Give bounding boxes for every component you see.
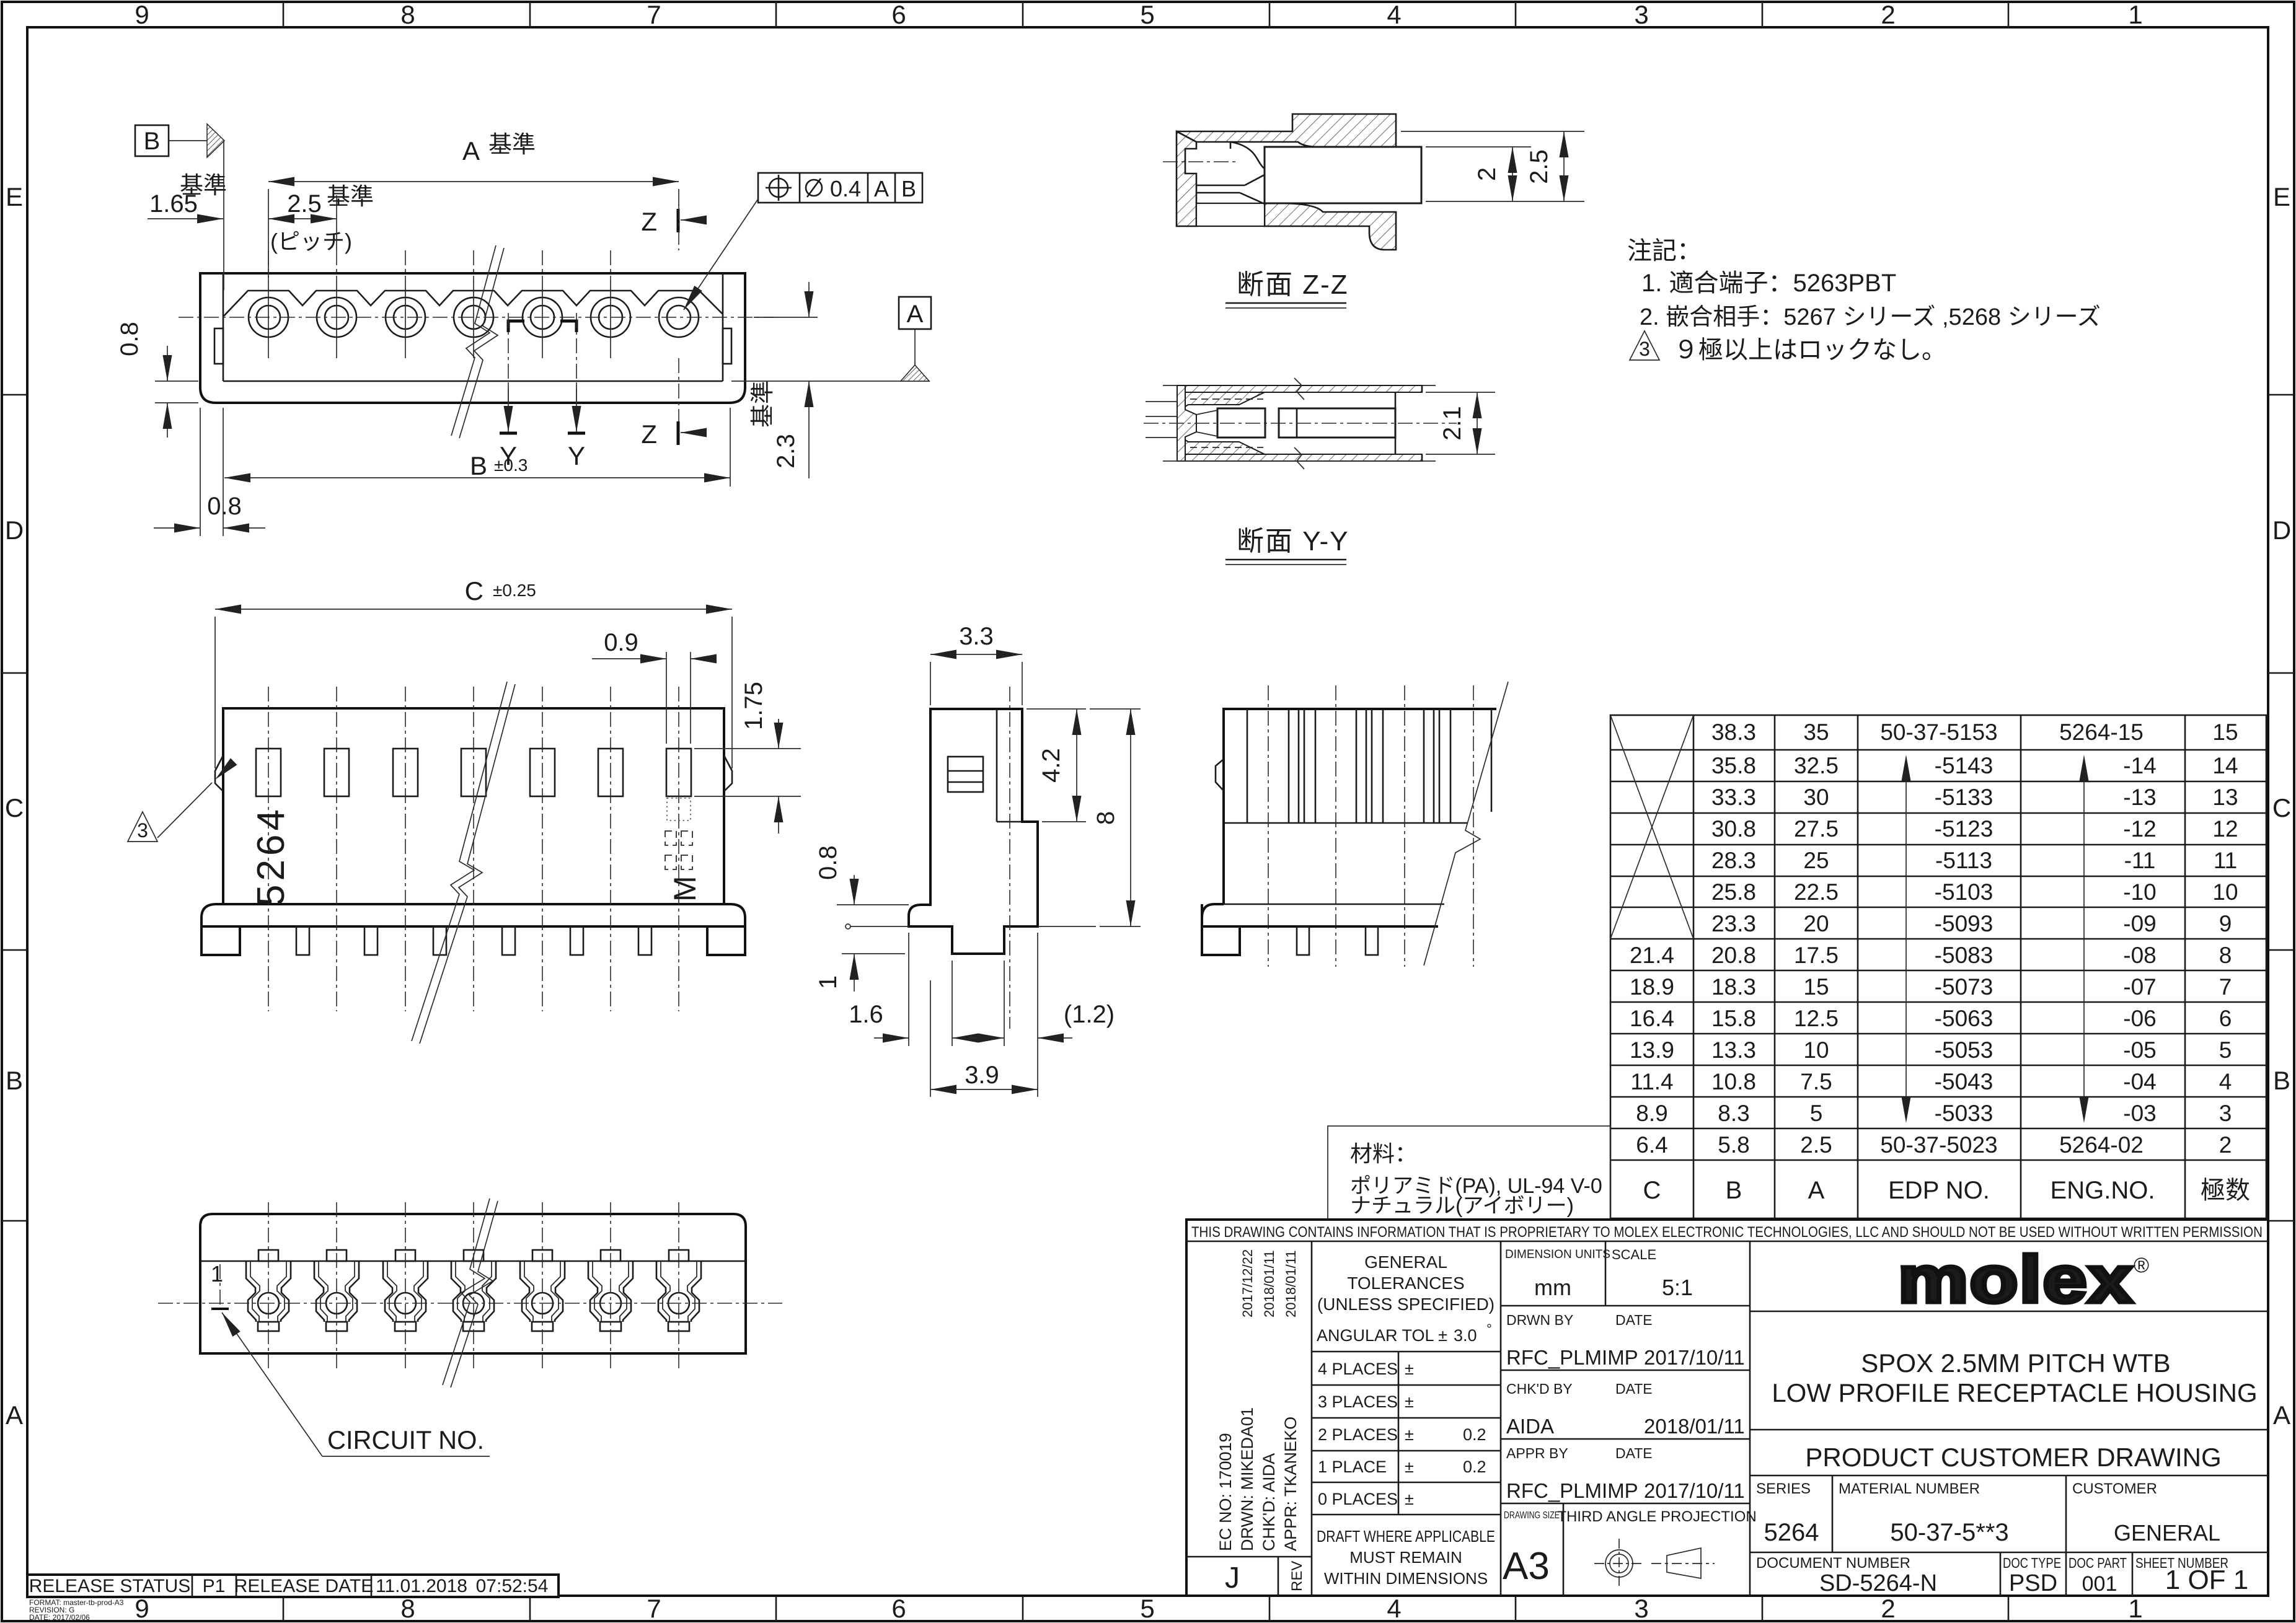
svg-text:PSD: PSD bbox=[2009, 1570, 2057, 1596]
svg-text:15: 15 bbox=[1803, 974, 1829, 1000]
svg-text:°: ° bbox=[1486, 1321, 1492, 1337]
svg-text:AIDA: AIDA bbox=[1506, 1415, 1554, 1438]
svg-text:6: 6 bbox=[891, 0, 906, 29]
svg-text:2: 2 bbox=[1473, 167, 1501, 181]
svg-text:0 PLACES: 0 PLACES bbox=[1318, 1490, 1398, 1508]
svg-text:-5123: -5123 bbox=[1935, 816, 1994, 842]
svg-text:1: 1 bbox=[211, 1261, 223, 1287]
svg-text:B: B bbox=[6, 1066, 23, 1095]
svg-text:材料：: 材料： bbox=[1350, 1141, 1417, 1166]
svg-text:2017/10/11: 2017/10/11 bbox=[1644, 1346, 1745, 1369]
svg-text:10: 10 bbox=[1803, 1037, 1829, 1063]
svg-text:5.8: 5.8 bbox=[1718, 1132, 1749, 1158]
svg-text:(UNLESS SPECIFIED): (UNLESS SPECIFIED) bbox=[1317, 1295, 1495, 1314]
svg-text:±: ± bbox=[1405, 1458, 1414, 1476]
svg-text:7: 7 bbox=[647, 0, 661, 29]
svg-text:-07: -07 bbox=[2123, 974, 2156, 1000]
svg-text:molex: molex bbox=[1898, 1243, 2134, 1316]
svg-text:20: 20 bbox=[1803, 911, 1829, 936]
svg-text:13.9: 13.9 bbox=[1630, 1037, 1674, 1063]
svg-text:3: 3 bbox=[1634, 0, 1648, 29]
svg-text:0.8: 0.8 bbox=[207, 493, 242, 520]
svg-text:0.9: 0.9 bbox=[604, 629, 638, 656]
svg-text:-5053: -5053 bbox=[1935, 1037, 1994, 1063]
svg-text:25.8: 25.8 bbox=[1711, 879, 1756, 905]
svg-text:5:1: 5:1 bbox=[1662, 1275, 1693, 1300]
svg-text:22.5: 22.5 bbox=[1794, 879, 1839, 905]
svg-text:18.9: 18.9 bbox=[1630, 974, 1674, 1000]
svg-text:SCALE: SCALE bbox=[1612, 1247, 1656, 1262]
svg-text:-5113: -5113 bbox=[1935, 848, 1992, 873]
svg-text:5264: 5264 bbox=[250, 806, 293, 906]
svg-text:WITHIN DIMENSIONS: WITHIN DIMENSIONS bbox=[1324, 1569, 1488, 1588]
svg-text:8: 8 bbox=[400, 1594, 415, 1623]
svg-text:9: 9 bbox=[135, 0, 149, 29]
svg-text:REV: REV bbox=[1289, 1561, 1305, 1591]
svg-text:RFC_PLMIMP: RFC_PLMIMP bbox=[1506, 1479, 1638, 1502]
svg-text:E: E bbox=[2273, 182, 2290, 211]
svg-text:-5063: -5063 bbox=[1935, 1006, 1994, 1031]
svg-text:7.5: 7.5 bbox=[1800, 1069, 1832, 1094]
svg-text:APPR BY: APPR BY bbox=[1506, 1445, 1568, 1461]
svg-text:3.3: 3.3 bbox=[959, 623, 994, 650]
svg-text:2018/01/11: 2018/01/11 bbox=[1261, 1251, 1277, 1317]
svg-text:2: 2 bbox=[1881, 0, 1895, 29]
svg-text:THIS DRAWING CONTAINS INFORMAT: THIS DRAWING CONTAINS INFORMATION THAT I… bbox=[1191, 1224, 2263, 1241]
svg-text:27.5: 27.5 bbox=[1794, 816, 1839, 842]
svg-text:35: 35 bbox=[1803, 719, 1829, 745]
svg-text:C: C bbox=[5, 793, 24, 822]
svg-text:2: 2 bbox=[2219, 1132, 2232, 1158]
svg-text:3: 3 bbox=[1634, 1594, 1648, 1623]
svg-text:5: 5 bbox=[2219, 1037, 2232, 1063]
svg-text:1. 適合端子：5263PBT: 1. 適合端子：5263PBT bbox=[1641, 270, 1896, 297]
svg-text:B: B bbox=[1726, 1177, 1742, 1204]
svg-text:ANGULAR TOL ±: ANGULAR TOL ± bbox=[1317, 1326, 1447, 1345]
svg-text:001: 001 bbox=[2082, 1572, 2117, 1596]
svg-text:-5093: -5093 bbox=[1935, 911, 1994, 936]
svg-text:11.01.2018: 11.01.2018 bbox=[376, 1576, 467, 1596]
svg-text:5: 5 bbox=[1810, 1101, 1823, 1126]
svg-text:D: D bbox=[2272, 516, 2291, 545]
svg-text:10: 10 bbox=[2212, 879, 2238, 905]
svg-text:M: M bbox=[668, 876, 702, 902]
svg-text:EDP NO.: EDP NO. bbox=[1888, 1177, 1990, 1204]
svg-text:±: ± bbox=[1405, 1392, 1414, 1411]
svg-text:CIRCUIT NO.: CIRCUIT NO. bbox=[327, 1425, 484, 1454]
svg-text:15: 15 bbox=[2212, 719, 2238, 745]
svg-text:B: B bbox=[2273, 1066, 2290, 1095]
svg-text:12: 12 bbox=[2212, 816, 2238, 842]
svg-text:8: 8 bbox=[400, 0, 415, 29]
svg-text:3.0: 3.0 bbox=[1454, 1326, 1477, 1345]
svg-text:CHK'D: AIDA: CHK'D: AIDA bbox=[1260, 1453, 1278, 1551]
svg-text:C: C bbox=[2272, 793, 2291, 822]
svg-text:A: A bbox=[1808, 1177, 1825, 1204]
svg-text:A: A bbox=[6, 1401, 23, 1430]
svg-text:-08: -08 bbox=[2123, 943, 2156, 968]
svg-text:0.4: 0.4 bbox=[830, 176, 861, 201]
svg-text:28.3: 28.3 bbox=[1711, 848, 1756, 873]
svg-text:THIRD ANGLE PROJECTION: THIRD ANGLE PROJECTION bbox=[1557, 1508, 1756, 1525]
svg-text:ENG.NO.: ENG.NO. bbox=[2051, 1177, 2155, 1204]
svg-text:DATE: DATE bbox=[1615, 1312, 1653, 1328]
svg-text:-10: -10 bbox=[2123, 879, 2156, 905]
svg-text:®: ® bbox=[2134, 1254, 2149, 1277]
svg-text:GENERAL: GENERAL bbox=[2114, 1520, 2220, 1546]
svg-text:基準: 基準 bbox=[327, 184, 374, 210]
svg-text:1: 1 bbox=[2128, 0, 2142, 29]
svg-text:07:52:54: 07:52:54 bbox=[476, 1576, 549, 1596]
svg-text:1 OF 1: 1 OF 1 bbox=[2165, 1565, 2249, 1595]
svg-text:4.2: 4.2 bbox=[1038, 748, 1065, 783]
svg-text:0.2: 0.2 bbox=[1463, 1458, 1486, 1476]
svg-text:-5043: -5043 bbox=[1935, 1069, 1994, 1094]
svg-text:±: ± bbox=[1405, 1425, 1414, 1444]
svg-text:SD-5264-N: SD-5264-N bbox=[1819, 1570, 1937, 1596]
svg-text:35.8: 35.8 bbox=[1711, 753, 1756, 778]
svg-text:50-37-5153: 50-37-5153 bbox=[1880, 719, 1997, 745]
svg-text:18.3: 18.3 bbox=[1711, 974, 1756, 1000]
svg-text:(ピッチ): (ピッチ) bbox=[270, 229, 352, 254]
svg-text:-5143: -5143 bbox=[1935, 753, 1994, 778]
svg-text:33.3: 33.3 bbox=[1711, 785, 1756, 810]
svg-text:-5133: -5133 bbox=[1935, 785, 1994, 810]
svg-text:4: 4 bbox=[1387, 1594, 1401, 1623]
svg-text:50-37-5023: 50-37-5023 bbox=[1880, 1132, 1997, 1158]
svg-text:2 PLACES: 2 PLACES bbox=[1318, 1425, 1398, 1444]
svg-text:A: A bbox=[2273, 1401, 2290, 1430]
svg-text:基準: 基準 bbox=[180, 173, 227, 199]
svg-text:RELEASE STATUS: RELEASE STATUS bbox=[29, 1576, 191, 1596]
svg-text:DRWN: MIKEDA01: DRWN: MIKEDA01 bbox=[1238, 1407, 1256, 1551]
svg-text:-09: -09 bbox=[2123, 911, 2156, 936]
svg-text:DRWN BY: DRWN BY bbox=[1506, 1312, 1573, 1328]
svg-text:LOW PROFILE RECEPTACLE HOUSING: LOW PROFILE RECEPTACLE HOUSING bbox=[1772, 1378, 2257, 1407]
svg-text:DOC TYPE: DOC TYPE bbox=[2003, 1555, 2061, 1571]
svg-text:-14: -14 bbox=[2123, 753, 2156, 778]
svg-text:Z: Z bbox=[641, 207, 657, 236]
svg-text:DATE: DATE bbox=[1615, 1381, 1653, 1397]
svg-text:8.3: 8.3 bbox=[1718, 1101, 1749, 1126]
svg-text:PRODUCT CUSTOMER DRAWING: PRODUCT CUSTOMER DRAWING bbox=[1805, 1443, 2221, 1472]
svg-text:P1: P1 bbox=[203, 1576, 226, 1596]
svg-text:8: 8 bbox=[2219, 943, 2232, 968]
svg-text:Y: Y bbox=[500, 441, 517, 470]
svg-text:-04: -04 bbox=[2123, 1069, 2156, 1094]
svg-text:10.8: 10.8 bbox=[1711, 1069, 1756, 1094]
svg-text:-5033: -5033 bbox=[1935, 1101, 1994, 1126]
svg-text:断面 Z-Z: 断面 Z-Z bbox=[1237, 270, 1349, 300]
svg-text:32.5: 32.5 bbox=[1794, 753, 1839, 778]
svg-text:A: A bbox=[907, 301, 924, 328]
svg-text:25: 25 bbox=[1803, 848, 1829, 873]
svg-text:2018/01/11: 2018/01/11 bbox=[1283, 1251, 1299, 1317]
svg-text:5264-02: 5264-02 bbox=[2059, 1132, 2144, 1158]
svg-text:A3: A3 bbox=[1503, 1545, 1550, 1588]
svg-text:8: 8 bbox=[1092, 811, 1119, 825]
svg-text:９極以上はロックなし。: ９極以上はロックなし。 bbox=[1674, 336, 1946, 364]
svg-text:APPR: TKANEKO: APPR: TKANEKO bbox=[1281, 1417, 1300, 1551]
svg-text:2.1: 2.1 bbox=[1439, 406, 1466, 441]
svg-text:Y: Y bbox=[568, 441, 585, 470]
svg-text:2.5: 2.5 bbox=[287, 190, 322, 218]
svg-text:mm: mm bbox=[1534, 1275, 1571, 1300]
svg-text:GENERAL: GENERAL bbox=[1364, 1252, 1447, 1272]
svg-text:SPOX 2.5MM PITCH WTB: SPOX 2.5MM PITCH WTB bbox=[1861, 1348, 2170, 1378]
svg-text:14: 14 bbox=[2212, 753, 2238, 778]
svg-text:1: 1 bbox=[815, 975, 842, 989]
svg-text:±: ± bbox=[1405, 1360, 1414, 1378]
svg-text:38.3: 38.3 bbox=[1711, 719, 1756, 745]
svg-text:B: B bbox=[470, 451, 487, 480]
svg-text:6: 6 bbox=[2219, 1006, 2232, 1031]
svg-text:4: 4 bbox=[1387, 0, 1401, 29]
svg-text:23.3: 23.3 bbox=[1711, 911, 1756, 936]
svg-text:3: 3 bbox=[2219, 1101, 2232, 1126]
svg-text:2. 嵌合相手：5267 シリーズ ,5268 シリーズ: 2. 嵌合相手：5267 シリーズ ,5268 シリーズ bbox=[1640, 304, 2101, 330]
svg-text:DATE: DATE bbox=[1615, 1445, 1653, 1461]
svg-text:12.5: 12.5 bbox=[1794, 1006, 1839, 1031]
svg-text:D: D bbox=[5, 516, 24, 545]
svg-text:DOC PART: DOC PART bbox=[2069, 1555, 2127, 1571]
svg-text:-06: -06 bbox=[2123, 1006, 2156, 1031]
svg-text:C: C bbox=[1643, 1177, 1661, 1204]
svg-text:13: 13 bbox=[2212, 785, 2238, 810]
svg-text:CHK'D BY: CHK'D BY bbox=[1506, 1381, 1573, 1397]
svg-text:9: 9 bbox=[2219, 911, 2232, 936]
svg-text:9: 9 bbox=[135, 1594, 149, 1623]
svg-text:2018/01/11: 2018/01/11 bbox=[1644, 1415, 1745, 1438]
svg-text:4: 4 bbox=[2219, 1069, 2232, 1094]
svg-text:A: A bbox=[462, 136, 480, 165]
svg-text:C: C bbox=[465, 576, 483, 605]
svg-text:-11: -11 bbox=[2124, 848, 2156, 873]
svg-text:極数: 極数 bbox=[2201, 1177, 2250, 1204]
svg-text:8.9: 8.9 bbox=[1636, 1101, 1667, 1126]
svg-text:±: ± bbox=[1405, 1490, 1414, 1508]
svg-text:3 PLACES: 3 PLACES bbox=[1318, 1392, 1398, 1411]
svg-text:20.8: 20.8 bbox=[1711, 943, 1756, 968]
svg-text:1 PLACE: 1 PLACE bbox=[1318, 1458, 1387, 1476]
svg-text:DRAWING SIZE: DRAWING SIZE bbox=[1504, 1510, 1560, 1521]
svg-text:-5083: -5083 bbox=[1935, 943, 1994, 968]
svg-text:5: 5 bbox=[1140, 0, 1154, 29]
svg-text:1.6: 1.6 bbox=[849, 1001, 883, 1028]
svg-text:6: 6 bbox=[891, 1594, 906, 1623]
svg-text:2017/12/22: 2017/12/22 bbox=[1240, 1249, 1255, 1317]
svg-text:2: 2 bbox=[1881, 1594, 1895, 1623]
svg-text:2.5: 2.5 bbox=[1526, 149, 1553, 184]
svg-text:3: 3 bbox=[1639, 338, 1650, 360]
svg-text:5: 5 bbox=[1140, 1594, 1154, 1623]
svg-text:4 PLACES: 4 PLACES bbox=[1318, 1360, 1398, 1378]
svg-text:11: 11 bbox=[2214, 848, 2237, 873]
svg-text:MATERIAL NUMBER: MATERIAL NUMBER bbox=[1839, 1480, 1980, 1497]
svg-text:2017/10/11: 2017/10/11 bbox=[1644, 1479, 1745, 1502]
svg-text:3.9: 3.9 bbox=[965, 1062, 999, 1089]
svg-text:11.4: 11.4 bbox=[1630, 1069, 1673, 1094]
svg-text:21.4: 21.4 bbox=[1630, 943, 1674, 968]
svg-text:RELEASE DATE: RELEASE DATE bbox=[234, 1576, 374, 1596]
svg-text:7: 7 bbox=[2219, 974, 2232, 1000]
svg-text:B: B bbox=[144, 128, 161, 155]
svg-text:50-37-5**3: 50-37-5**3 bbox=[1890, 1519, 2008, 1546]
svg-text:-13: -13 bbox=[2123, 785, 2156, 810]
svg-text:SERIES: SERIES bbox=[1756, 1480, 1811, 1497]
svg-text:1: 1 bbox=[2128, 1594, 2142, 1623]
svg-text:1.75: 1.75 bbox=[740, 682, 767, 730]
svg-text:ナチュラル(アイボリー): ナチュラル(アイボリー) bbox=[1350, 1194, 1574, 1218]
svg-text:EC NO: 170019: EC NO: 170019 bbox=[1216, 1433, 1235, 1551]
svg-text:DRAFT WHERE APPLICABLE: DRAFT WHERE APPLICABLE bbox=[1317, 1527, 1495, 1546]
svg-text:(1.2): (1.2) bbox=[1064, 1001, 1115, 1028]
svg-text:0.8: 0.8 bbox=[815, 845, 842, 880]
svg-text:0.2: 0.2 bbox=[1463, 1425, 1486, 1444]
svg-text:5264: 5264 bbox=[1764, 1519, 1819, 1546]
svg-text:30.8: 30.8 bbox=[1711, 816, 1756, 842]
svg-text:基準: 基準 bbox=[750, 380, 776, 428]
svg-text:2.3: 2.3 bbox=[772, 434, 800, 468]
svg-text:基準: 基準 bbox=[488, 132, 536, 158]
svg-text:注記：: 注記： bbox=[1627, 237, 1702, 265]
svg-text:A: A bbox=[874, 176, 889, 201]
svg-text:2.5: 2.5 bbox=[1800, 1132, 1832, 1158]
svg-text:RFC_PLMIMP: RFC_PLMIMP bbox=[1506, 1346, 1638, 1369]
svg-text:MUST REMAIN: MUST REMAIN bbox=[1349, 1548, 1462, 1567]
svg-text:15.8: 15.8 bbox=[1711, 1006, 1756, 1031]
svg-text:-12: -12 bbox=[2123, 816, 2156, 842]
svg-text:6.4: 6.4 bbox=[1636, 1132, 1667, 1158]
svg-text:-5073: -5073 bbox=[1935, 974, 1994, 1000]
svg-text:3: 3 bbox=[137, 819, 148, 842]
svg-text:-5103: -5103 bbox=[1935, 879, 1994, 905]
svg-text:B: B bbox=[901, 176, 916, 201]
svg-text:17.5: 17.5 bbox=[1794, 943, 1839, 968]
svg-text:DOCUMENT NUMBER: DOCUMENT NUMBER bbox=[1756, 1555, 1910, 1572]
svg-text:5264-15: 5264-15 bbox=[2059, 719, 2144, 745]
svg-text:-05: -05 bbox=[2123, 1037, 2156, 1063]
svg-text:DIMENSION UNITS: DIMENSION UNITS bbox=[1505, 1248, 1610, 1261]
svg-text:TOLERANCES: TOLERANCES bbox=[1347, 1273, 1464, 1293]
svg-text:0.8: 0.8 bbox=[116, 322, 143, 356]
svg-text:16.4: 16.4 bbox=[1630, 1006, 1674, 1031]
svg-text:±0.25: ±0.25 bbox=[493, 581, 536, 600]
svg-text:7: 7 bbox=[647, 1594, 661, 1623]
svg-text:-03: -03 bbox=[2123, 1101, 2156, 1126]
svg-text:J: J bbox=[1225, 1562, 1240, 1594]
svg-text:断面 Y-Y: 断面 Y-Y bbox=[1237, 526, 1349, 556]
svg-text:E: E bbox=[6, 182, 23, 211]
svg-text:CUSTOMER: CUSTOMER bbox=[2072, 1480, 2157, 1497]
svg-text:Z: Z bbox=[641, 420, 657, 449]
svg-text:13.3: 13.3 bbox=[1711, 1037, 1756, 1063]
svg-text:DATE: 2017/02/06: DATE: 2017/02/06 bbox=[29, 1613, 90, 1622]
svg-text:30: 30 bbox=[1803, 785, 1829, 810]
